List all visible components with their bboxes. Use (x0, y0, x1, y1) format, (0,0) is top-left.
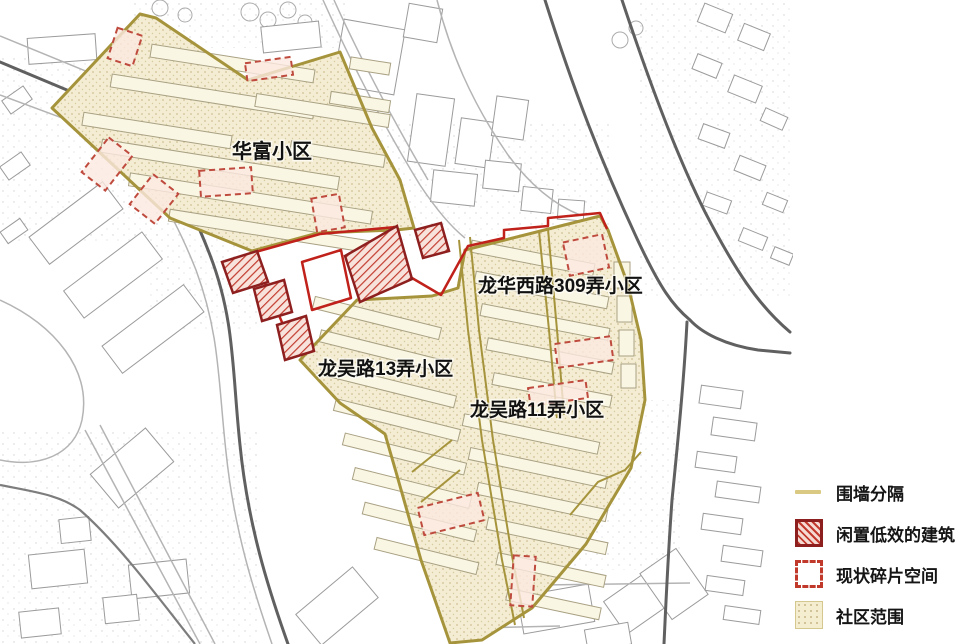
legend-label: 围墙分隔 (836, 480, 904, 505)
legend-label: 社区范围 (836, 603, 904, 628)
dashed-swatch-icon (795, 560, 823, 588)
legend-item-idle-buildings: 闲置低效的建筑 (795, 519, 965, 547)
dotted-fill-swatch-icon (795, 601, 823, 629)
legend-item-fragment-space: 现状碎片空间 (795, 560, 965, 588)
legend-item-community-extent: 社区范围 (795, 601, 965, 629)
map-legend: 围墙分隔 闲置低效的建筑 现状碎片空间 社区范围 (795, 478, 965, 629)
legend-label: 闲置低效的建筑 (836, 521, 955, 546)
wall-line-swatch-icon (795, 478, 823, 506)
legend-label: 现状碎片空间 (836, 562, 938, 587)
area-label-longwulu-13: 龙吴路13弄小区 (318, 357, 453, 380)
area-label-longwulu-11: 龙吴路11弄小区 (470, 398, 604, 421)
legend-item-wall-separation: 围墙分隔 (795, 478, 965, 506)
hatched-swatch-icon (795, 519, 823, 547)
planning-map: 华富小区 龙华西路309弄小区 龙吴路13弄小区 龙吴路11弄小区 围墙分隔 闲… (0, 0, 967, 644)
area-label-huafu: 华富小区 (232, 139, 312, 163)
area-label-longhuaxilu-309: 龙华西路309弄小区 (478, 274, 643, 297)
